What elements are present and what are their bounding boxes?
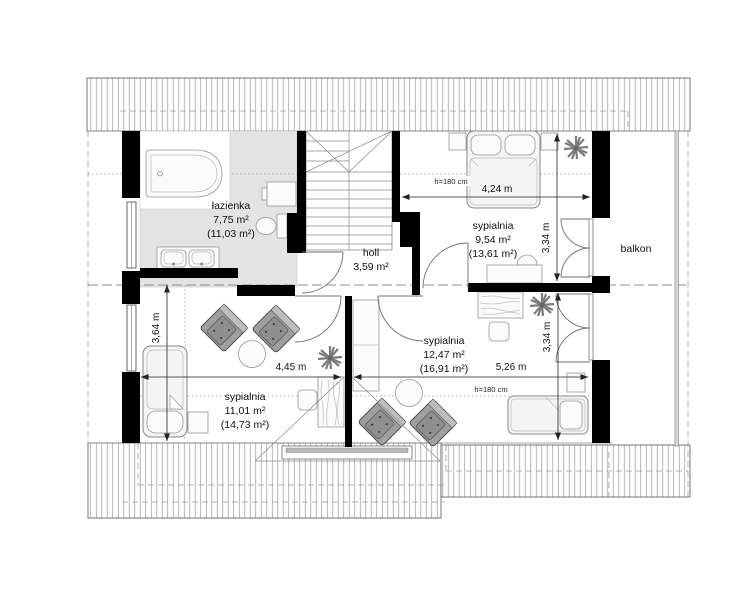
bathroom-area: 7,75 m² [213,214,249,226]
floor-plan-canvas: balkon [0,0,750,600]
desk-chair [517,255,537,265]
roof-band-top [87,78,690,131]
bedroom-left-furniture [143,304,344,437]
desk-right-bedroom [478,292,523,341]
floor-plan-page: balkon [0,0,750,600]
bedroom-left-area-gross: (14,73 m²) [221,419,269,431]
bedroom-right-name: sypialnia [424,335,465,347]
nightstand [541,133,558,150]
staircase [306,131,392,250]
bathroom-area-gross: (11,03 m²) [207,228,255,240]
hall-name: holl [363,247,379,259]
dim-left-height-label: 3,64 m [151,313,162,344]
dim-right-height-label: 3,34 m [542,322,553,353]
washing-machine [262,182,296,206]
pillow [560,401,582,429]
round-table [239,341,266,368]
double-sink-vanity [157,247,219,270]
bathroom-name: łazienka [212,200,251,212]
plant-icon [564,136,588,159]
plant-icon [318,346,342,369]
headroom-label-bottom: h=180 cm [471,384,511,394]
balcony-railing [675,131,679,446]
balcony-door-bottom [556,294,590,362]
bedroom-left-area: 11,01 m² [225,405,266,417]
dim-top-height-label: 3,34 m [541,223,552,254]
bedroom-top-furniture [449,131,588,283]
balcony: balkon [621,131,679,446]
hall-area: 3,59 m² [353,261,389,273]
dim-left-width-label: 4,45 m [276,362,307,373]
plant-icon [530,293,554,316]
side-table [188,412,208,433]
svg-text:h=180 cm: h=180 cm [474,385,507,394]
sofa-bed [143,346,187,437]
bedroom-right-area: 12,47 m² [423,349,465,361]
headroom-label-top: h=180 cm [431,176,471,186]
armchair [200,304,248,352]
armchair [409,399,457,447]
nightstand [567,373,585,392]
bedroom-right-area-gross: (16,91 m²) [420,363,468,375]
balcony-door-top [561,219,590,277]
desk-chair [298,390,317,410]
dim-top-width-label: 4,24 m [482,184,513,195]
bedroom-top-name: sypialnia [473,220,514,232]
dim-right-width-label: 5,26 m [496,362,527,373]
round-table [396,380,423,407]
bedroom-top-door [423,243,468,288]
nightstand [449,133,466,150]
double-bed [467,131,540,208]
bathroom-door [302,252,343,293]
faucet-icon [200,263,203,266]
bathtub [146,150,222,197]
desk-chair [489,322,509,341]
bedroom-left-door [295,296,341,342]
balcony-door-frame [589,294,593,360]
balcony-label: balkon [621,243,652,255]
faucet-icon [172,263,175,266]
bedroom-right-furniture [353,292,588,447]
balcony-door-frame [589,219,593,276]
single-bed [508,396,588,434]
bedroom-top-area-gross: (13,61 m²) [469,248,517,260]
svg-text:h=180 cm: h=180 cm [434,177,467,186]
bedroom-right-door [378,296,423,341]
desk-left-bedroom [298,377,344,427]
bedroom-top-area: 9,54 m² [475,234,511,246]
bedroom-left-name: sypialnia [225,391,266,403]
